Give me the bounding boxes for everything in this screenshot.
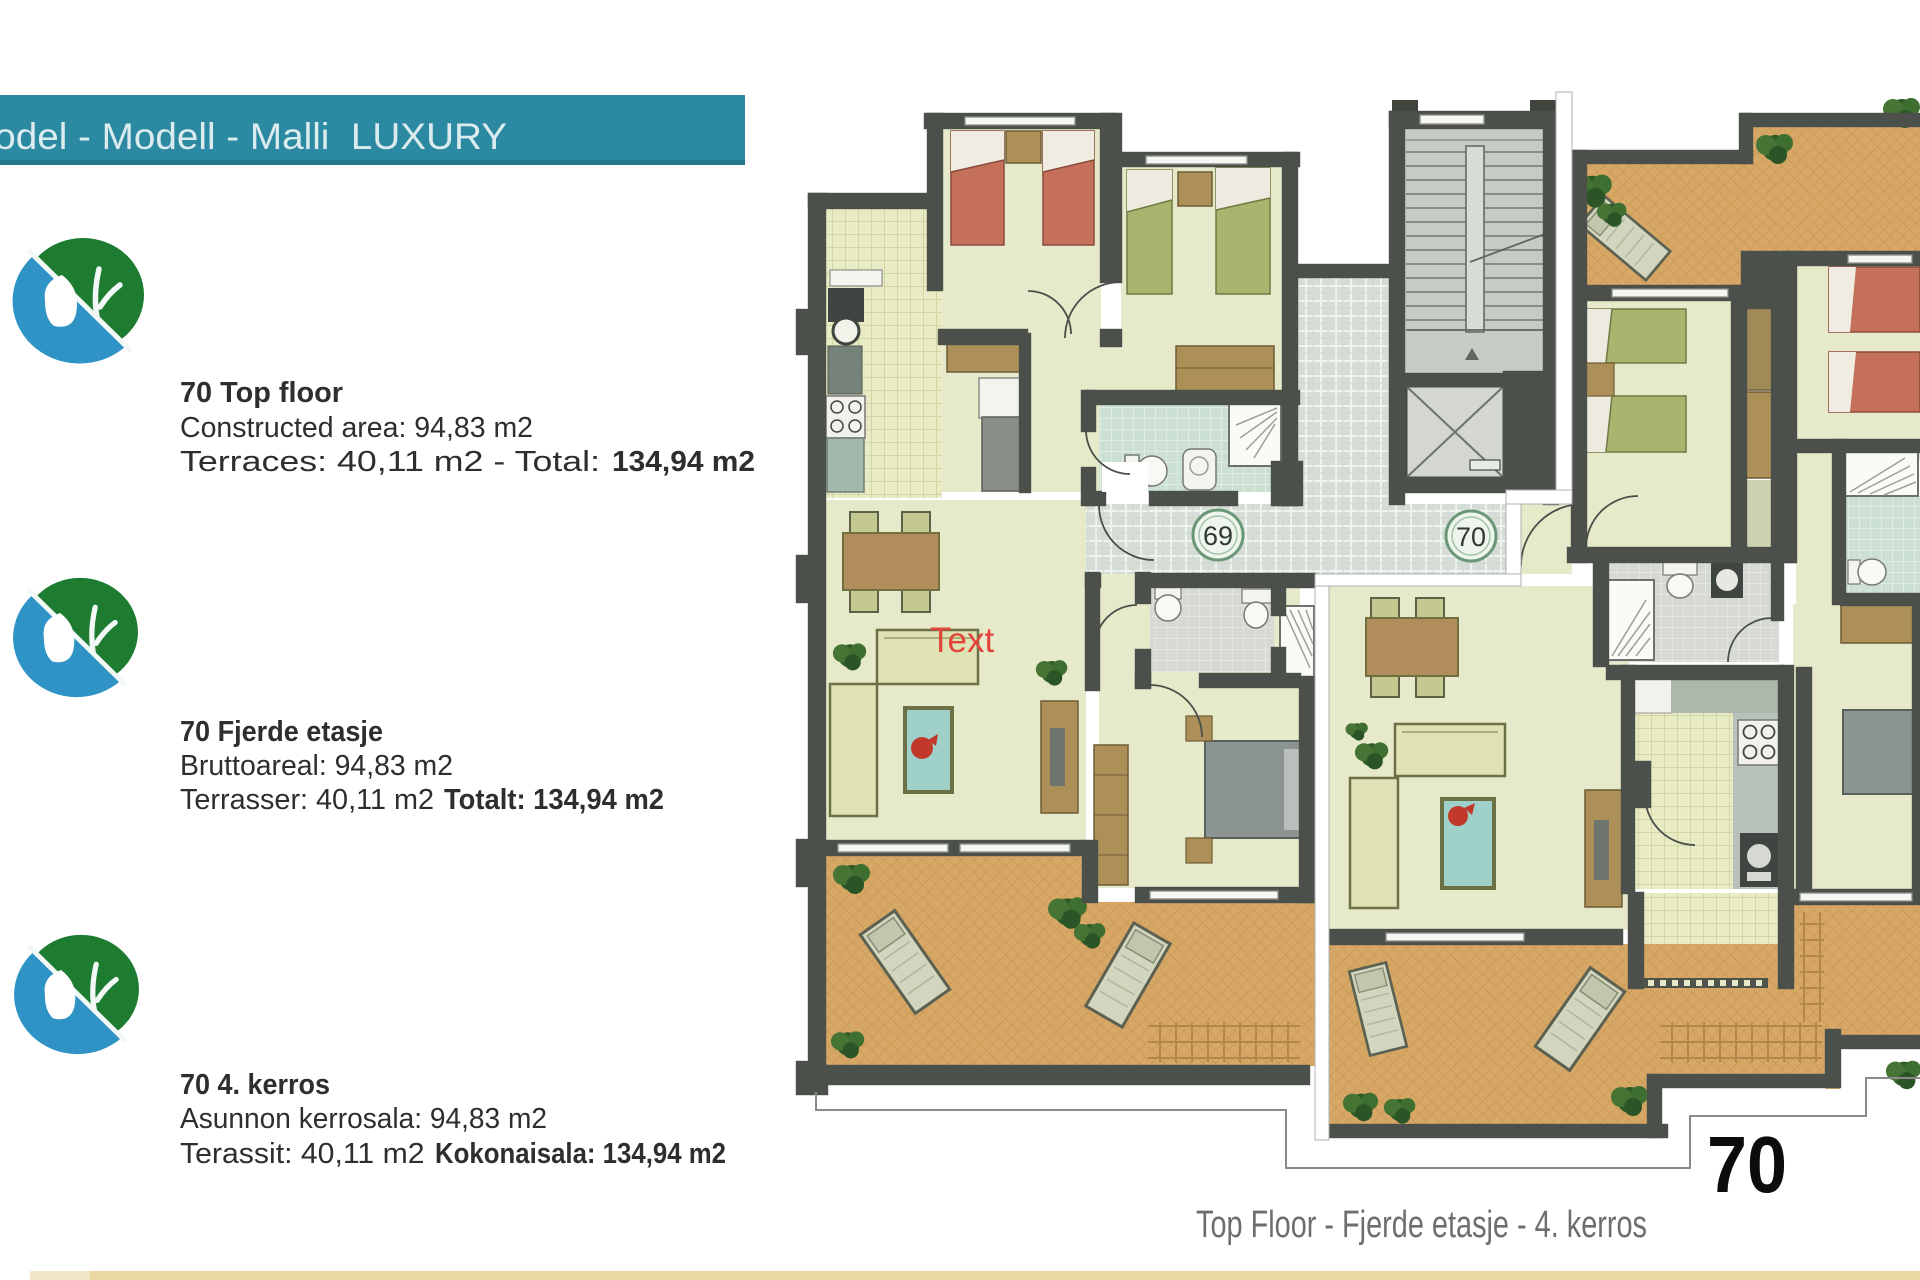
svg-text:Constructed area: 94,83 m2: Constructed area: 94,83 m2 — [180, 412, 533, 444]
svg-text:Totalt: 134,94 m2: Totalt: 134,94 m2 — [444, 784, 664, 816]
svg-text:Terassit: 40,11 m2: Terassit: 40,11 m2 — [180, 1138, 433, 1170]
svg-text:Bruttoareal: 94,83 m2: Bruttoareal: 94,83 m2 — [180, 750, 453, 782]
svg-text:70 Fjerde etasje: 70 Fjerde etasje — [180, 716, 383, 748]
svg-text:Model - Modell - Malli LUXURY: Model - Modell - Malli LUXURY — [0, 116, 507, 157]
svg-text:70 4. kerros: 70 4. kerros — [180, 1069, 330, 1101]
svg-text:Asunnon kerrosala: 94,83 m2: Asunnon kerrosala: 94,83 m2 — [180, 1103, 547, 1135]
svg-text:Terrasser: 40,11 m2: Terrasser: 40,11 m2 — [180, 784, 442, 816]
svg-text:Kokonaisala: 134,94 m2: Kokonaisala: 134,94 m2 — [435, 1138, 726, 1170]
svg-text:Top Floor - Fjerde etasje - 4.: Top Floor - Fjerde etasje - 4. kerros — [1196, 1204, 1647, 1246]
svg-text:69: 69 — [1203, 521, 1233, 551]
svg-text:Terraces: 40,11 m2 - Total:: Terraces: 40,11 m2 - Total: — [180, 446, 610, 478]
svg-text:Text: Text — [930, 621, 994, 660]
svg-text:134,94 m2: 134,94 m2 — [612, 446, 755, 478]
svg-text:70: 70 — [1707, 1120, 1787, 1209]
svg-text:70: 70 — [1456, 522, 1486, 552]
svg-text:70 Top floor: 70 Top floor — [180, 377, 343, 409]
